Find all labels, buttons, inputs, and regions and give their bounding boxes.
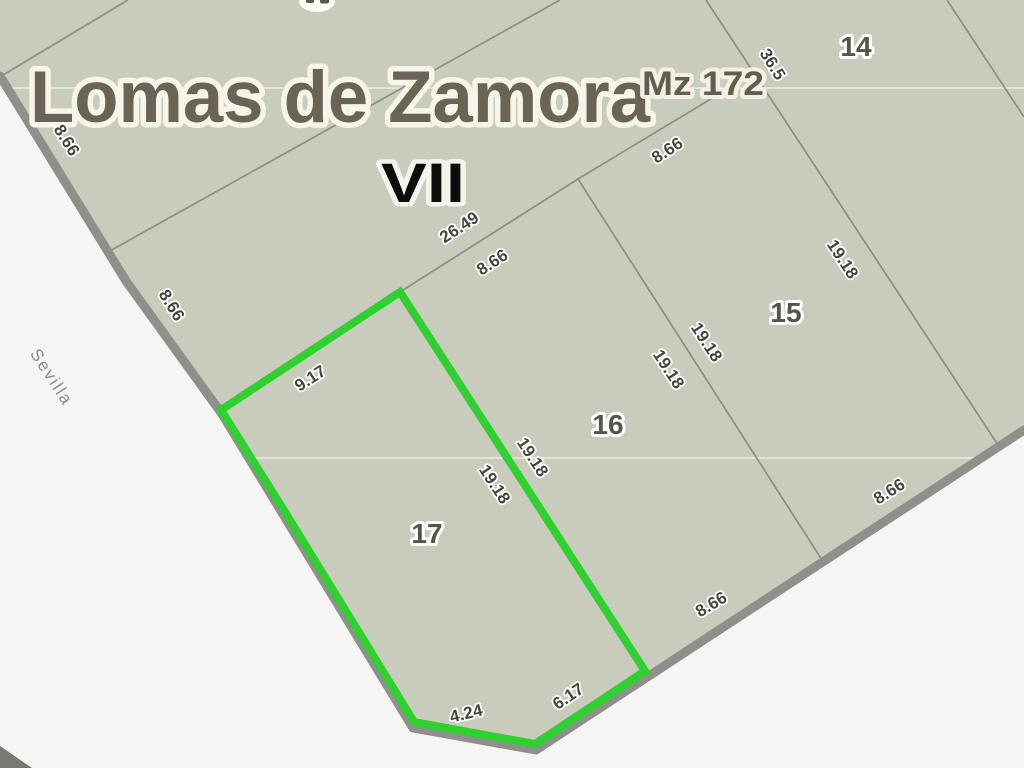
parcel-label-14: 14 <box>840 31 872 62</box>
parcel-label-15: 15 <box>770 297 801 328</box>
map-svg: Lomas de Zamora Mz 172 VII Sevilla 14 15… <box>0 0 1024 768</box>
region-title: Lomas de Zamora <box>30 57 651 138</box>
section-label: VII <box>381 151 465 214</box>
block-label: Mz 172 <box>642 65 764 103</box>
cadastral-map-canvas[interactable]: Lomas de Zamora Mz 172 VII Sevilla 14 15… <box>0 0 1024 768</box>
parcel-label-17: 17 <box>411 518 442 549</box>
parcel-label-16: 16 <box>592 409 623 440</box>
